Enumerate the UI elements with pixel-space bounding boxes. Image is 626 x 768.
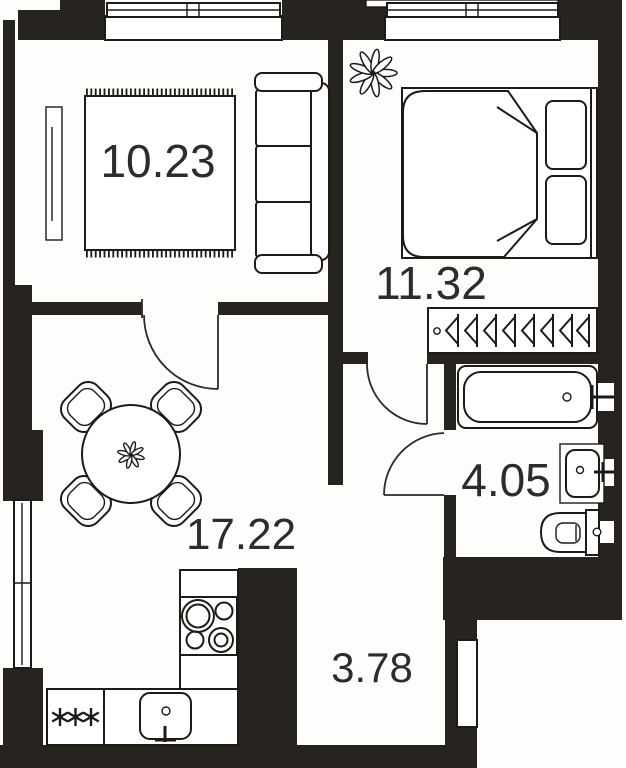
floor-plan-drawing: 10.23 11.32 17.22 4.05 3.78 — [0, 0, 626, 768]
room-label-17-22: 17.22 — [186, 510, 296, 559]
window-top-right — [366, 0, 560, 40]
entry-door — [457, 640, 477, 727]
stove-four-burners — [176, 597, 237, 655]
window-top-left — [105, 3, 282, 40]
room-label-3-78: 3.78 — [331, 644, 413, 691]
kitchen-sink — [140, 693, 191, 742]
radiator-cabinet — [46, 107, 62, 240]
wardrobe-rail-hangers — [428, 308, 597, 353]
floor-plan: 10.23 11.32 17.22 4.05 3.78 — [0, 0, 626, 768]
toilet — [541, 510, 601, 555]
double-bed — [402, 88, 597, 258]
room-label-11-32: 11.32 — [375, 257, 487, 309]
room-label-10-23: 10.23 — [100, 135, 215, 187]
bathtub — [458, 366, 615, 428]
room-label-4-05: 4.05 — [461, 454, 551, 506]
sofa — [255, 73, 329, 273]
window-left-wall — [14, 500, 31, 668]
fridge-freezer-icon — [52, 708, 99, 726]
